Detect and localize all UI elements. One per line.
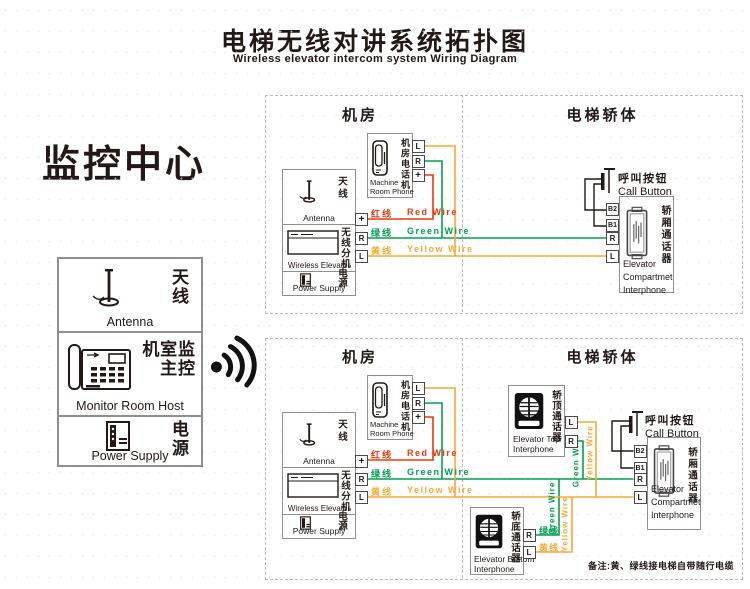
- antenna-icon: [85, 264, 129, 310]
- antenna-icon: [295, 418, 321, 450]
- top-wireless-station-box: 天线 Antenna 无线分机 Wireless Elevator 电源 Pow…: [282, 169, 356, 296]
- radio-unit-icon: [287, 473, 339, 498]
- station-power-cell: 电源 Power Supply: [283, 271, 355, 294]
- yellow-wire-vertical-label: Yellow Wire: [561, 496, 570, 551]
- compartment-label-en2: Compartmet: [651, 496, 701, 509]
- machine-room-phone-label-en1: Machine: [370, 178, 414, 187]
- compartment-label-en2: Compartmet: [623, 271, 673, 284]
- monitor-power-label-en: Power Supply: [59, 449, 201, 463]
- bottom-machine-room-heading: 机房: [330, 346, 390, 367]
- terminal-r: R: [412, 397, 425, 410]
- yellow-wire-label: 黄线 Yellow Wire: [371, 244, 473, 257]
- speaker-interphone-icon: [514, 392, 544, 430]
- terminal-l: L: [565, 416, 578, 429]
- station-antenna-label-en: Antenna: [283, 456, 355, 466]
- bottom-interphone-label-en2: Interphone: [474, 564, 534, 574]
- terminal-r: R: [355, 473, 368, 486]
- top-machine-room-heading: 机房: [330, 104, 390, 125]
- station-antenna-label-en: Antenna: [283, 213, 355, 223]
- bottom-wireless-station-box: 天线 Antenna 无线分机 Wireless Elevator 电源 Pow…: [282, 412, 356, 539]
- machine-room-phone-label-en1: Machine: [370, 420, 414, 429]
- intercom-panel-icon: [625, 205, 649, 261]
- station-wireless-cell: 无线分机 Wireless Elevator: [283, 224, 355, 271]
- station-antenna-label-zh: 天线: [336, 419, 346, 444]
- red-wire-label: 红线 Red Wire: [371, 448, 458, 461]
- compartment-label-en1: Elevator: [651, 483, 701, 496]
- green-wire-short-label: 绿线: [539, 524, 559, 537]
- bottom-call-button-label: 呼叫按钮 Call Button: [645, 412, 699, 440]
- terminal-l: L: [523, 546, 536, 559]
- station-wireless-cell: 无线分机 Wireless Elevator: [283, 467, 355, 514]
- yellow-wire-label: 黄线 Yellow Wire: [371, 485, 473, 498]
- top-machine-room-phone-box: 机房电话机 Machine Room Phone: [367, 133, 413, 198]
- terminal-l: L: [634, 491, 647, 504]
- terminal-l: L: [355, 250, 368, 263]
- top-call-button-label: 呼叫按钮 Call Button: [618, 170, 672, 198]
- monitor-center-box: 天线 Antenna 监控室主机 Monitor Room Host: [57, 257, 203, 467]
- wiring-diagram-page: 电梯无线对讲系统拓扑图 Wireless elevator intercom s…: [0, 0, 750, 589]
- speaker-interphone-icon: [475, 514, 503, 549]
- terminal-b2: B2: [606, 203, 619, 216]
- machine-room-phone-label-en2: Room Phone: [370, 187, 414, 196]
- green-wire-label: 绿线 Green Wire: [371, 226, 470, 239]
- push-button-icon: [601, 169, 615, 193]
- terminal-l: L: [355, 491, 368, 504]
- push-button-icon: [629, 412, 643, 436]
- compartment-label-en3: Interphone: [651, 509, 701, 522]
- radio-unit-icon: [287, 230, 339, 255]
- monitor-power-cell: 电源 Power Supply: [59, 415, 201, 465]
- terminal-r: R: [565, 435, 578, 448]
- top-interphone-label-en1: Elevator Top: [513, 434, 560, 444]
- compartment-label-en3: Interphone: [623, 284, 673, 297]
- monitor-host-label-en: Monitor Room Host: [59, 399, 201, 413]
- terminal-r: R: [412, 155, 425, 168]
- station-antenna-cell: 天线 Antenna: [283, 413, 355, 467]
- wall-phone-icon: [372, 382, 388, 420]
- station-power-cell: 电源 Power Supply: [283, 514, 355, 537]
- red-wire-label: 红线 Red Wire: [371, 207, 458, 220]
- terminal-l: L: [606, 250, 619, 263]
- station-antenna-label-zh: 天线: [336, 176, 346, 201]
- compartment-label-en1: Elevator: [623, 258, 673, 271]
- terminal-r: R: [606, 232, 619, 245]
- antenna-icon: [295, 175, 321, 207]
- wall-phone-icon: [372, 140, 388, 178]
- terminal-l: L: [412, 140, 425, 153]
- station-power-label-en: Power Supply: [283, 283, 355, 293]
- terminal-plus: +: [355, 213, 368, 226]
- yellow-wire-short-label: 黄线: [539, 541, 559, 554]
- green-wire-label: 绿线 Green Wire: [371, 467, 470, 480]
- yellow-wire-vertical-label: Yellow Wire: [586, 425, 595, 480]
- power-supply-icon: [105, 420, 131, 452]
- terminal-r: R: [355, 232, 368, 245]
- top-interphone-label-en2: Interphone: [513, 444, 560, 454]
- bottom-elevator-car-heading: 电梯轿体: [565, 346, 640, 367]
- terminal-r: R: [523, 529, 536, 542]
- terminal-plus: +: [412, 411, 425, 424]
- monitor-antenna-label-en: Antenna: [59, 315, 201, 329]
- station-power-label-en: Power Supply: [283, 526, 355, 536]
- terminal-b2: B2: [634, 445, 647, 458]
- elevator-top-interphone-box: 轿顶通话器 Elevator Top Interphone: [508, 385, 565, 457]
- terminal-l: L: [412, 382, 425, 395]
- machine-room-phone-label-en2: Room Phone: [370, 429, 414, 438]
- monitor-host-cell: 监控室主机 Monitor Room Host: [59, 331, 201, 415]
- top-elevator-car-heading: 电梯轿体: [565, 104, 640, 125]
- compartment-label-zh: 轿厢通话器: [659, 205, 670, 265]
- elevator-bottom-interphone-box: 轿底通话器 Elevator Bottom Interphone: [470, 507, 524, 575]
- terminal-b1: B1: [606, 219, 619, 232]
- bottom-machine-room-phone-box: 机房电话机 Machine Room Phone: [367, 375, 413, 440]
- desk-phone-icon: [67, 341, 133, 393]
- terminal-plus: +: [355, 455, 368, 468]
- monitor-antenna-label-zh: 天线: [169, 268, 187, 306]
- terminal-plus: +: [412, 169, 425, 182]
- top-call-button-wire-b1: [594, 184, 606, 226]
- monitor-host-label-zh: 监控室主机: [139, 340, 193, 396]
- monitor-antenna-cell: 天线 Antenna: [59, 259, 201, 331]
- terminal-r: R: [634, 473, 647, 486]
- footnote: 备注:黄、绿线接电梯自带随行电缆: [588, 559, 742, 572]
- station-antenna-cell: 天线 Antenna: [283, 170, 355, 224]
